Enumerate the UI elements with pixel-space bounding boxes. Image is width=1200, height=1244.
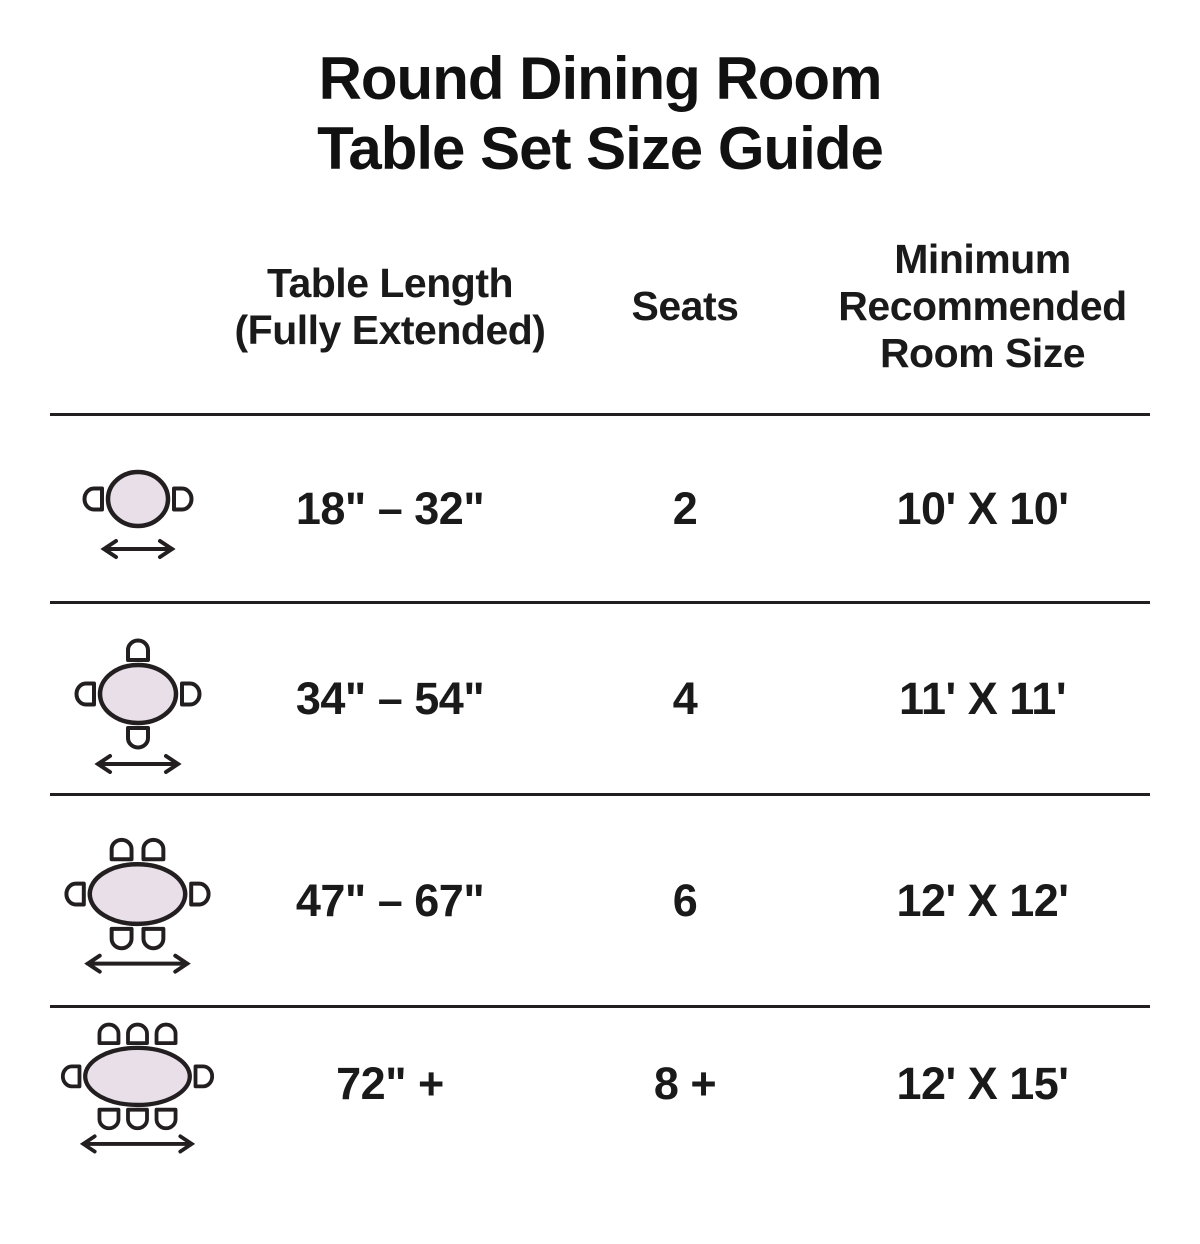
chair-bottom-icon	[128, 728, 148, 748]
round-table-4-seats-top-view-icon	[58, 624, 218, 774]
row-icon-cell	[50, 624, 225, 774]
chair-bottom-icon	[157, 1110, 176, 1129]
table-top-shape	[90, 864, 185, 924]
table-row: 34" – 54" 4 11' X 11'	[50, 601, 1150, 793]
table-header-row: Table Length (Fully Extended) Seats Mini…	[50, 236, 1150, 413]
chair-left-icon	[84, 488, 102, 509]
chair-bottom-icon	[143, 928, 163, 947]
chair-bottom-icon	[112, 928, 132, 947]
header-room-size: Minimum Recommended Room Size	[815, 236, 1150, 377]
chair-top-icon	[99, 1025, 118, 1044]
table-row: 18" – 32" 2 10' X 10'	[50, 413, 1150, 601]
chair-top-icon	[143, 839, 163, 858]
table-top-shape	[108, 472, 168, 526]
length-value: 34" – 54"	[225, 673, 555, 725]
width-arrow-icon	[83, 1136, 191, 1151]
seats-value: 2	[555, 483, 815, 535]
chair-top-icon	[157, 1025, 176, 1044]
table-top-shape	[100, 665, 176, 723]
row-icon-cell	[50, 453, 225, 565]
round-table-2-seats-top-view-icon	[58, 453, 218, 565]
seats-value: 6	[555, 875, 815, 927]
room-size-value: 10' X 10'	[815, 483, 1150, 535]
chair-right-icon	[174, 488, 192, 509]
width-arrow-icon	[88, 955, 187, 971]
chair-top-icon	[128, 1025, 147, 1044]
length-value: 18" – 32"	[225, 483, 555, 535]
page-title-line2: Table Set Size Guide	[0, 114, 1200, 184]
page-title: Round Dining Room Table Set Size Guide	[0, 44, 1200, 184]
chair-bottom-icon	[99, 1110, 118, 1129]
width-arrow-icon	[104, 541, 172, 557]
page-title-line1: Round Dining Room	[0, 44, 1200, 114]
chair-right-icon	[182, 683, 200, 704]
table-top-shape	[85, 1048, 190, 1105]
chair-left-icon	[63, 1066, 80, 1086]
length-value: 72" +	[225, 1058, 555, 1110]
chair-top-icon	[128, 640, 148, 660]
length-value: 47" – 67"	[225, 875, 555, 927]
size-guide-table: Table Length (Fully Extended) Seats Mini…	[50, 236, 1150, 1160]
round-table-6-seats-top-view-icon	[50, 826, 225, 976]
round-table-8-seats-top-view-icon	[50, 1008, 225, 1160]
chair-right-icon	[191, 883, 208, 904]
chair-right-icon	[196, 1066, 213, 1086]
row-icon-cell	[50, 826, 225, 976]
room-size-value: 11' X 11'	[815, 673, 1150, 725]
row-icon-cell	[50, 1008, 225, 1160]
chair-bottom-icon	[128, 1110, 147, 1129]
seats-value: 8 +	[555, 1058, 815, 1110]
width-arrow-icon	[98, 756, 178, 772]
header-seats: Seats	[555, 283, 815, 330]
room-size-value: 12' X 12'	[815, 875, 1150, 927]
chair-top-icon	[112, 839, 132, 858]
header-table-length: Table Length (Fully Extended)	[225, 260, 555, 354]
chair-left-icon	[66, 883, 83, 904]
table-row: 47" – 67" 6 12' X 12'	[50, 793, 1150, 1005]
seats-value: 4	[555, 673, 815, 725]
table-row: 72" + 8 + 12' X 15'	[50, 1005, 1150, 1160]
chair-left-icon	[76, 683, 94, 704]
room-size-value: 12' X 15'	[815, 1058, 1150, 1110]
